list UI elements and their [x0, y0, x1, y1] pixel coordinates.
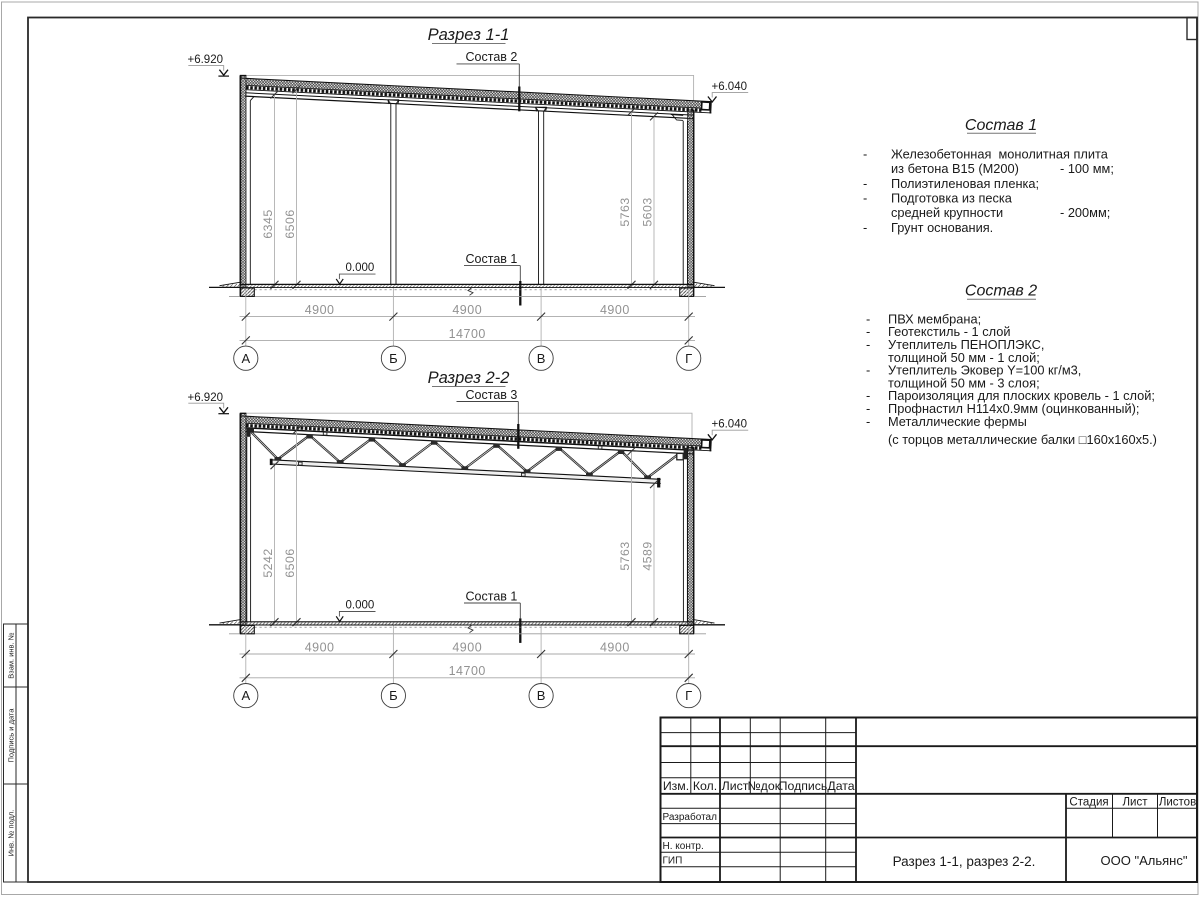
svg-text:В: В	[537, 351, 546, 366]
svg-text:- 200мм;: - 200мм;	[1060, 205, 1110, 220]
svg-text:А: А	[241, 351, 250, 366]
svg-text:14700: 14700	[449, 664, 486, 678]
svg-text:Инв. № подл.: Инв. № подл.	[7, 810, 16, 857]
svg-text:6506: 6506	[283, 548, 297, 577]
svg-text:Металлические фермы: Металлические фермы	[888, 414, 1027, 429]
svg-text:Состав 1: Состав 1	[466, 589, 518, 603]
svg-text:Изм.: Изм.	[663, 779, 689, 793]
svg-text:Подготовка из песка: Подготовка из песка	[891, 190, 1013, 205]
svg-text:Разработал: Разработал	[663, 811, 718, 823]
svg-text:Подпись: Подпись	[779, 779, 828, 793]
svg-text:Состав 1: Состав 1	[965, 117, 1037, 134]
svg-text:Н. контр.: Н. контр.	[663, 841, 704, 852]
svg-text:Разрез 1-1: Разрез 1-1	[428, 26, 510, 44]
svg-text:Г: Г	[685, 688, 692, 703]
svg-text:Состав 2: Состав 2	[466, 50, 518, 64]
svg-text:ГИП: ГИП	[663, 856, 683, 867]
svg-text:А: А	[241, 688, 250, 703]
svg-text:5763: 5763	[618, 541, 632, 570]
svg-text:+6.920: +6.920	[188, 54, 224, 66]
svg-text:-: -	[866, 363, 870, 378]
svg-text:Б: Б	[389, 351, 398, 366]
svg-text:4900: 4900	[600, 640, 630, 654]
svg-text:+6.040: +6.040	[712, 81, 748, 93]
svg-text:5603: 5603	[641, 197, 655, 226]
svg-text:4900: 4900	[452, 640, 482, 654]
svg-text:4589: 4589	[641, 541, 655, 570]
svg-text:Г: Г	[685, 351, 692, 366]
svg-text:4900: 4900	[600, 303, 630, 317]
svg-text:Состав 2: Состав 2	[965, 283, 1037, 300]
svg-text:4900: 4900	[305, 303, 335, 317]
svg-text:Грунт основания.: Грунт основания.	[891, 220, 993, 235]
svg-text:Состав 1: Состав 1	[466, 252, 518, 266]
svg-text:- 100 мм;: - 100 мм;	[1060, 161, 1114, 176]
svg-text:Разрез 1-1, разрез 2-2.: Разрез 1-1, разрез 2-2.	[893, 854, 1036, 869]
svg-text:0.000: 0.000	[346, 600, 375, 612]
svg-text:Состав 3: Состав 3	[466, 388, 518, 402]
svg-text:-: -	[866, 414, 870, 429]
svg-text:Лист: Лист	[722, 779, 749, 793]
svg-text:-: -	[863, 147, 867, 162]
svg-text:6345: 6345	[261, 209, 275, 238]
svg-text:5242: 5242	[261, 548, 275, 577]
svg-text:ООО "Альянс": ООО "Альянс"	[1101, 853, 1188, 868]
svg-text:средней крупности: средней крупности	[891, 205, 1003, 220]
svg-text:Дата: Дата	[827, 779, 854, 793]
svg-text:Кол.: Кол.	[693, 779, 717, 793]
svg-text:В: В	[537, 688, 546, 703]
svg-text:-: -	[863, 176, 867, 191]
svg-text:Разрез 2-2: Разрез 2-2	[428, 369, 510, 387]
svg-text:(с торцов металлические балки: (с торцов металлические балки □160х160х5…	[888, 432, 1157, 447]
svg-text:Б: Б	[389, 688, 398, 703]
svg-text:Железобетонная монолитная пли: Железобетонная монолитная плита	[891, 147, 1109, 162]
svg-text:+6.040: +6.040	[712, 418, 748, 430]
svg-text:4900: 4900	[452, 303, 482, 317]
svg-text:5763: 5763	[618, 197, 632, 226]
svg-text:-: -	[863, 220, 867, 235]
svg-text:-: -	[863, 190, 867, 205]
svg-text:4900: 4900	[305, 640, 335, 654]
svg-text:0.000: 0.000	[346, 262, 375, 274]
svg-text:Полиэтиленовая пленка;: Полиэтиленовая пленка;	[891, 176, 1039, 191]
svg-text:Взам. инв. №: Взам. инв. №	[7, 632, 16, 678]
svg-text:+6.920: +6.920	[188, 392, 224, 404]
svg-text:Лист: Лист	[1123, 797, 1149, 809]
svg-text:14700: 14700	[449, 327, 486, 341]
svg-text:Подпись и дата: Подпись и дата	[7, 708, 16, 763]
svg-text:из бетона В15 (М200): из бетона В15 (М200)	[891, 161, 1019, 176]
svg-text:-: -	[866, 337, 870, 352]
svg-text:Стадия: Стадия	[1069, 797, 1108, 809]
svg-text:6506: 6506	[283, 209, 297, 238]
svg-text:Листов: Листов	[1159, 797, 1196, 809]
